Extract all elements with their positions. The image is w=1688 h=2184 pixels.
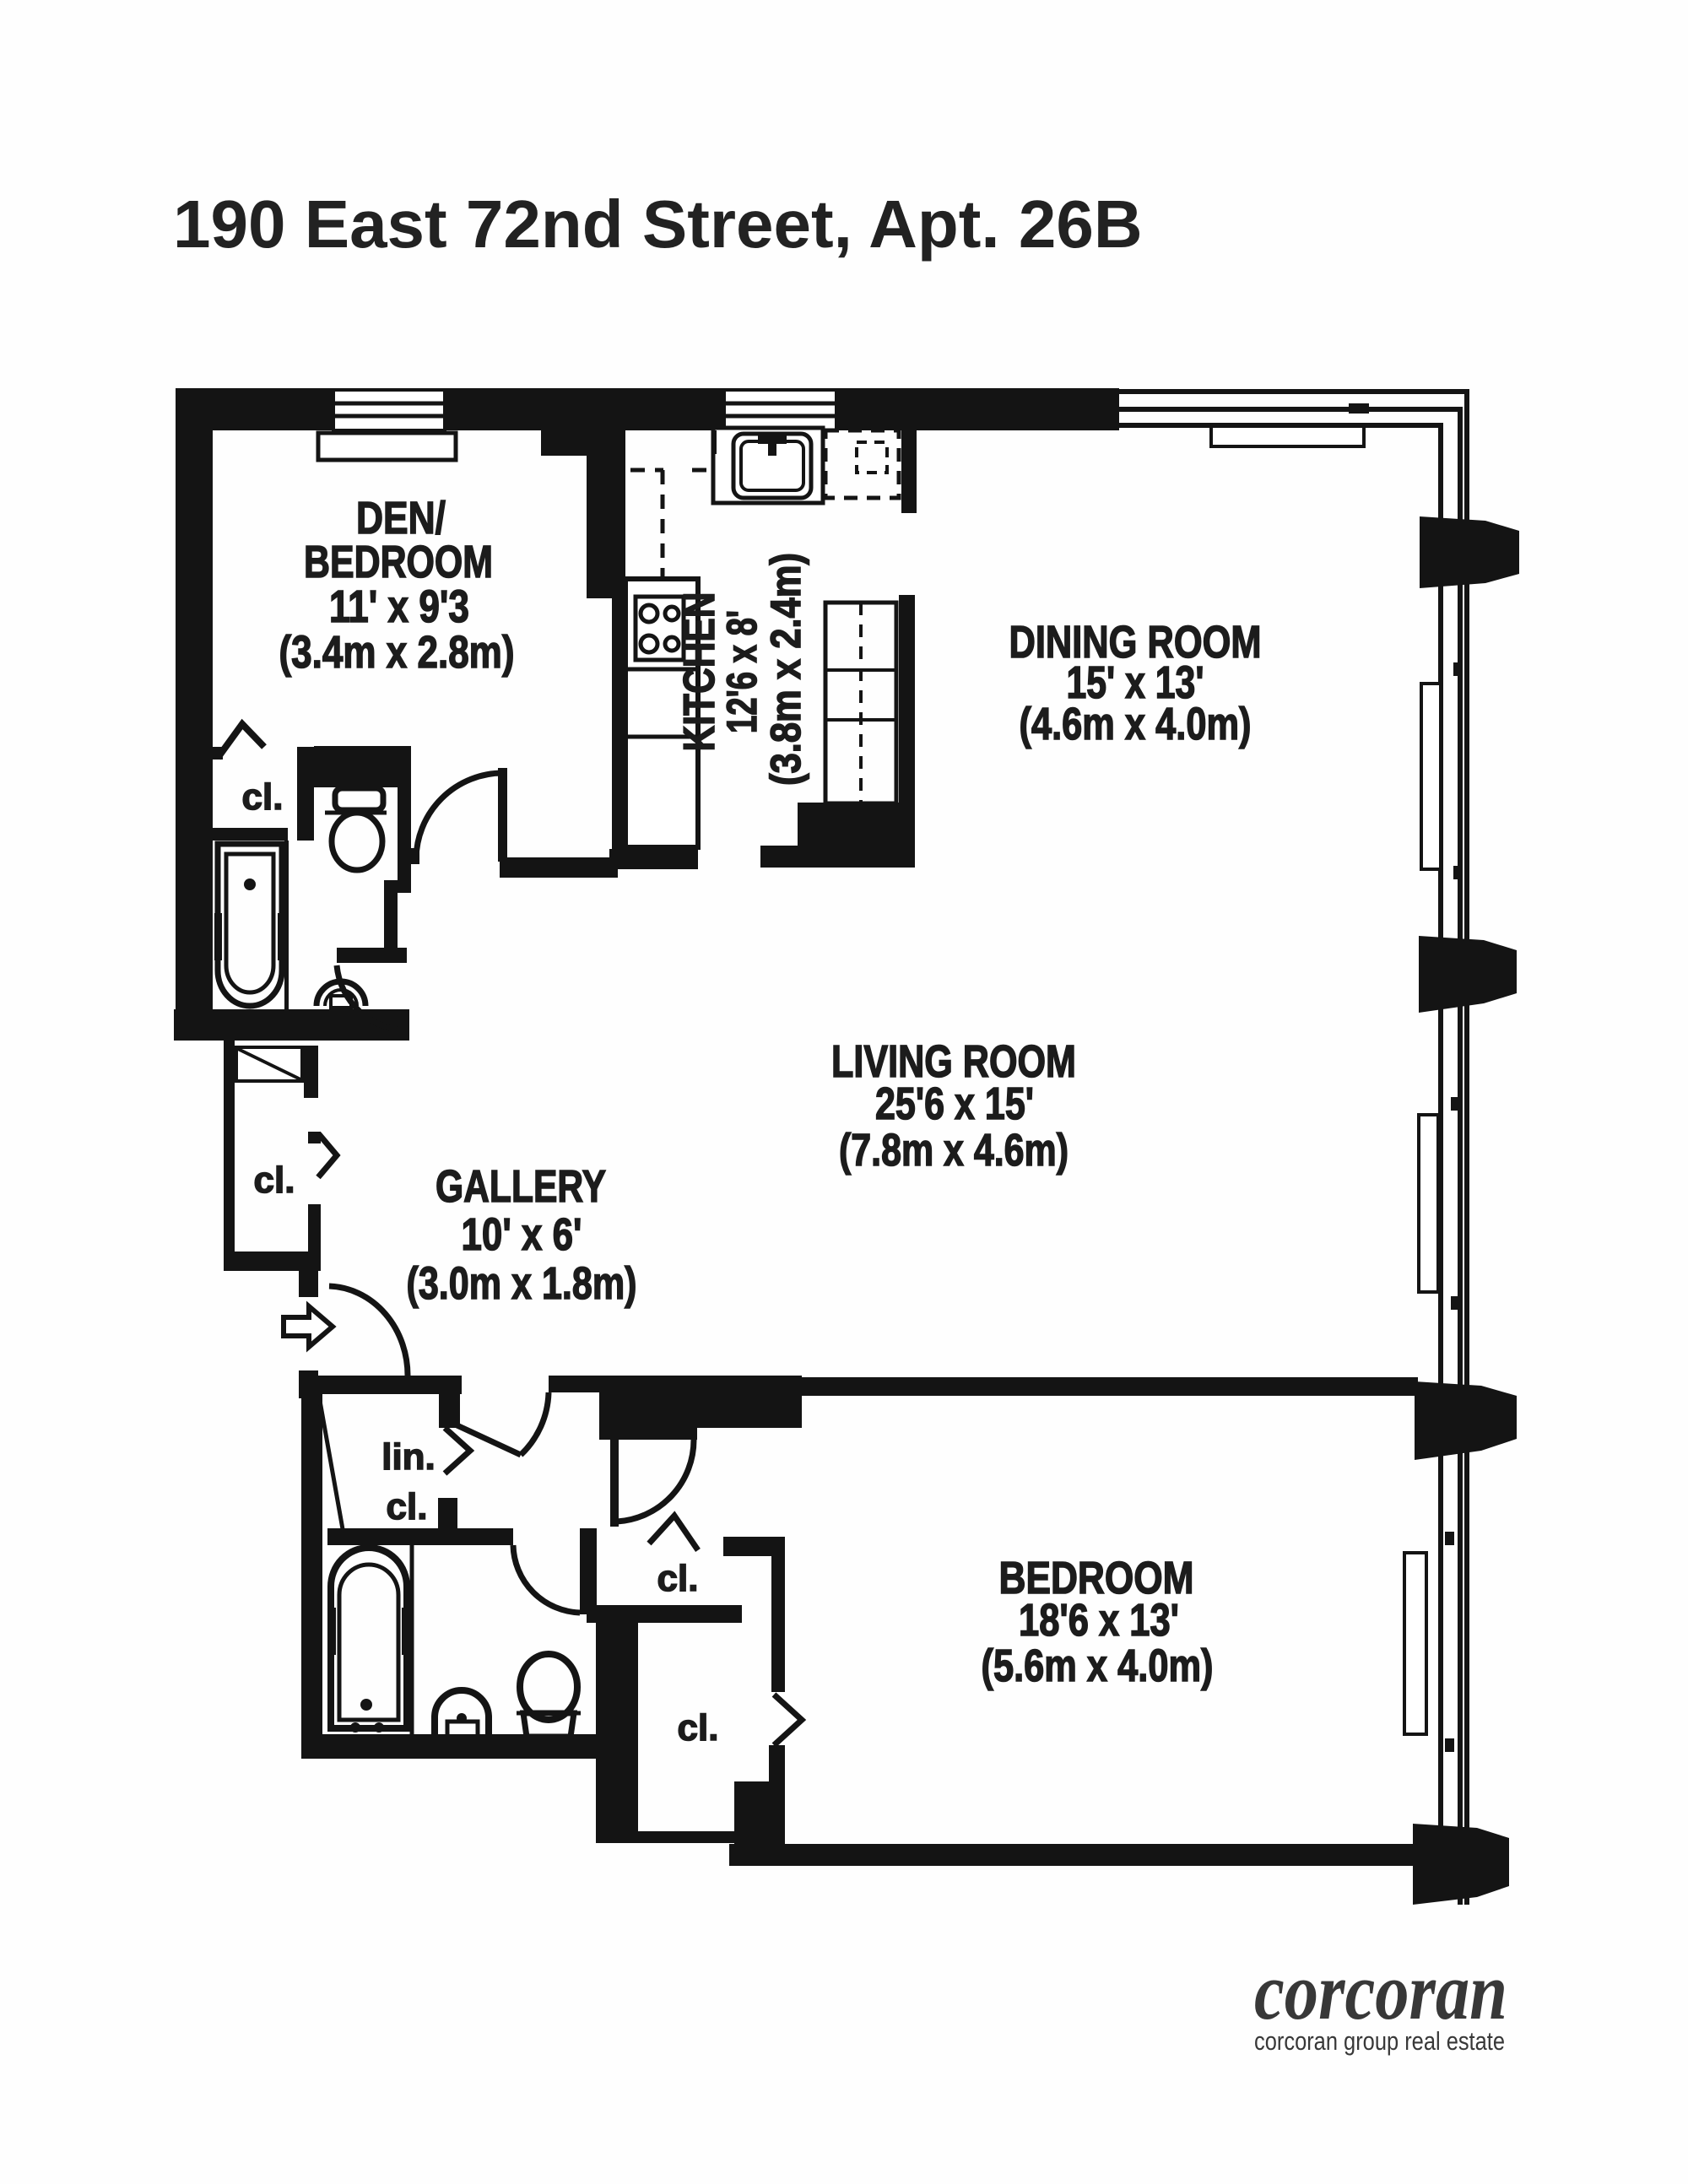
svg-text:corcoran group real estate: corcoran group real estate: [1254, 2026, 1505, 2056]
svg-text:BEDROOM: BEDROOM: [304, 537, 493, 587]
svg-text:25'6 x 15': 25'6 x 15': [875, 1078, 1034, 1129]
svg-text:cl.: cl.: [678, 1707, 719, 1749]
svg-text:GALLERY: GALLERY: [436, 1161, 606, 1212]
svg-text:cl.: cl.: [387, 1486, 428, 1527]
svg-text:11' x 9'3: 11' x 9'3: [329, 581, 469, 632]
svg-text:KITCHEN: KITCHEN: [675, 592, 724, 752]
svg-text:(7.8m x 4.6m): (7.8m x 4.6m): [839, 1125, 1069, 1176]
svg-text:cl.: cl.: [242, 776, 284, 818]
svg-text:190 East 72nd Street, Apt. 26B: 190 East 72nd Street, Apt. 26B: [173, 187, 1143, 262]
svg-text:cl.: cl.: [254, 1160, 295, 1201]
svg-text:(3.8m x 2.4m): (3.8m x 2.4m): [762, 553, 809, 786]
svg-text:corcoran: corcoran: [1254, 1946, 1507, 2036]
svg-text:18'6 x 13': 18'6 x 13': [1019, 1595, 1179, 1646]
svg-text:(3.0m x 1.8m): (3.0m x 1.8m): [407, 1258, 637, 1309]
svg-text:12'6 x 8': 12'6 x 8': [718, 610, 766, 733]
svg-text:(5.6m x 4.0m): (5.6m x 4.0m): [982, 1641, 1214, 1691]
svg-text:(3.4m x 2.8m): (3.4m x 2.8m): [279, 627, 515, 678]
svg-text:(4.6m x 4.0m): (4.6m x 4.0m): [1020, 699, 1252, 749]
svg-text:10' x 6': 10' x 6': [462, 1209, 582, 1260]
svg-text:DEN/: DEN/: [356, 493, 446, 543]
svg-text:lin.: lin.: [381, 1436, 436, 1478]
svg-text:cl.: cl.: [657, 1558, 699, 1599]
